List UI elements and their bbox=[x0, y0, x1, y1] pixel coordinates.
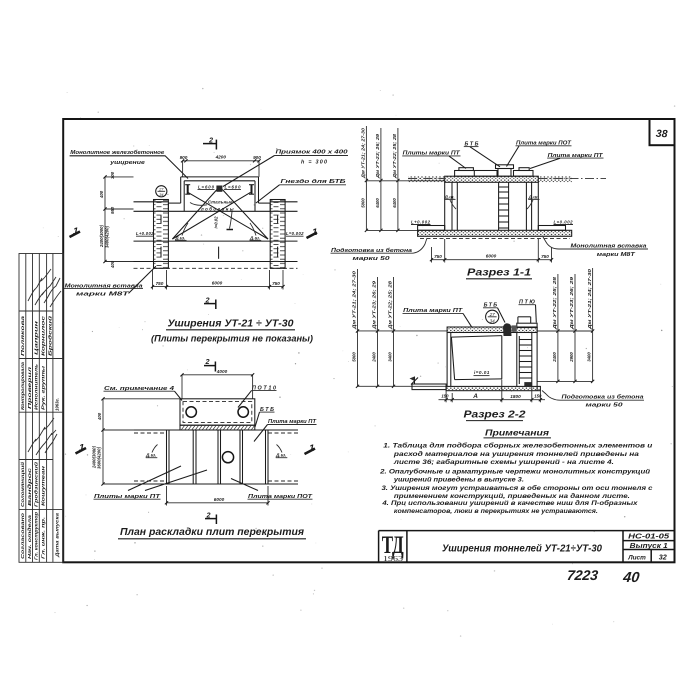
svg-text:марки 50: марки 50 bbox=[353, 256, 390, 262]
svg-text:6000: 6000 bbox=[486, 254, 497, 259]
svg-text:Гл. конструктор: Гл. конструктор bbox=[34, 512, 39, 560]
svg-text:750: 750 bbox=[156, 281, 164, 286]
svg-text:Бродский: Бродский bbox=[47, 315, 52, 356]
svg-text:32: 32 bbox=[659, 553, 667, 562]
svg-text:400: 400 bbox=[97, 412, 102, 421]
svg-text:3400(4200): 3400(4200) bbox=[104, 225, 109, 248]
svg-text:Дм УТ-23; 26; 29: Дм УТ-23; 26; 29 bbox=[375, 134, 380, 180]
svg-text:400: 400 bbox=[110, 260, 115, 269]
svg-text:Бандрос: Бандрос bbox=[27, 467, 32, 506]
svg-text:h = 300: h = 300 bbox=[301, 160, 327, 166]
svg-text:2: 2 bbox=[205, 357, 210, 366]
svg-text:900: 900 bbox=[253, 155, 261, 160]
svg-text:3400: 3400 bbox=[388, 352, 393, 362]
svg-text:Исполнитель: Исполнитель bbox=[34, 363, 39, 410]
svg-text:40: 40 bbox=[621, 570, 640, 586]
svg-text:1: 1 bbox=[73, 226, 78, 237]
svg-text:Дм УТ-21; 24; 27-30: Дм УТ-21; 24; 27-30 bbox=[361, 128, 366, 180]
svg-text:План раскладки плит перекры: План раскладки плит перекрытия bbox=[120, 526, 304, 538]
svg-text:2900: 2900 bbox=[569, 352, 574, 363]
svg-text:750: 750 bbox=[541, 254, 549, 259]
svg-text:i=0.02: i=0.02 bbox=[214, 216, 219, 229]
svg-text:950: 950 bbox=[110, 206, 115, 214]
svg-text:7223: 7223 bbox=[566, 567, 599, 583]
svg-text:1963г.: 1963г. bbox=[55, 398, 60, 411]
svg-text:2400: 2400 bbox=[372, 352, 377, 363]
svg-text:750: 750 bbox=[434, 254, 442, 259]
svg-text:2. Опалубочные и арматурные че: 2. Опалубочные и арматурные чертежи моно… bbox=[379, 467, 650, 475]
svg-text:34: 34 bbox=[159, 192, 164, 197]
svg-text:6000: 6000 bbox=[212, 281, 223, 286]
svg-text:марки 50: марки 50 bbox=[586, 403, 623, 409]
svg-text:Д.ш.: Д.ш. bbox=[145, 453, 156, 458]
svg-text:Разрез 1-1: Разрез 1-1 bbox=[467, 267, 531, 279]
svg-text:А: А bbox=[472, 393, 478, 400]
svg-text:L=0.002: L=0.002 bbox=[554, 219, 574, 224]
svg-text:1: 1 bbox=[312, 227, 317, 238]
svg-text:34: 34 bbox=[490, 318, 496, 323]
svg-text:150: 150 bbox=[441, 394, 449, 399]
svg-text:27: 27 bbox=[158, 186, 164, 191]
svg-text:марки М8Т: марки М8Т bbox=[76, 292, 130, 298]
svg-text:6400: 6400 bbox=[375, 198, 380, 208]
svg-text:Дм УТ-22; 25; 28: Дм УТ-22; 25; 28 bbox=[552, 276, 557, 330]
svg-text:1. Таблица для подбора сборных: 1. Таблица для подбора сборных железобет… bbox=[383, 442, 652, 450]
svg-text:Уширения УТ-21 ÷ УТ-30: Уширения УТ-21 ÷ УТ-30 bbox=[168, 318, 294, 330]
svg-text:i=0.01: i=0.01 bbox=[474, 370, 490, 375]
svg-text:Д.ш.: Д.ш. bbox=[275, 453, 286, 458]
svg-text:Цаприн: Цаприн bbox=[34, 320, 39, 355]
svg-text:5000: 5000 bbox=[360, 198, 365, 208]
svg-text:Гродзинский: Гродзинский bbox=[34, 461, 39, 507]
svg-text:Д.ш.: Д.ш. bbox=[249, 235, 260, 240]
svg-text:Дата выпуска: Дата выпуска bbox=[55, 512, 60, 558]
svg-text:Д.ш.: Д.ш. bbox=[444, 194, 455, 199]
svg-text:Соломяницкий: Соломяницкий bbox=[20, 461, 25, 507]
svg-text:5000: 5000 bbox=[352, 352, 357, 362]
svg-text:1: 1 bbox=[309, 443, 314, 454]
svg-text:Гл. инж. пр.: Гл. инж. пр. bbox=[41, 517, 46, 559]
svg-text:расход материалов на уширения: расход материалов на уширения тоннелей п… bbox=[393, 450, 640, 458]
svg-text:38: 38 bbox=[655, 128, 667, 141]
svg-text:Д.ш.: Д.ш. bbox=[174, 235, 185, 240]
svg-text:Дм УТ-22; 25; 28: Дм УТ-22; 25; 28 bbox=[388, 280, 393, 330]
svg-text:3400: 3400 bbox=[587, 352, 592, 362]
svg-text:3600(4200): 3600(4200) bbox=[97, 446, 102, 469]
svg-text:Приямок 400 х 400: Приямок 400 х 400 bbox=[276, 150, 348, 156]
svg-text:(Плиты перекрытия не показаны): (Плиты перекрытия не показаны) bbox=[151, 334, 313, 344]
svg-text:Уширения тоннелей УТ-21÷УТ-30: Уширения тоннелей УТ-21÷УТ-30 bbox=[442, 543, 602, 555]
svg-text:Дм УТ-21; 24; 27-30: Дм УТ-21; 24; 27-30 bbox=[587, 268, 592, 330]
svg-text:3. Уширения могут устраиваться: 3. Уширения могут устраиваться в обе сто… bbox=[382, 484, 654, 492]
svg-text:Д.ш.: Д.ш. bbox=[528, 194, 539, 199]
svg-text:компенсаторов, люки в перекрыт: компенсаторов, люки в перекрытиях не уст… bbox=[394, 508, 598, 515]
svg-text:марки М8Т: марки М8Т bbox=[597, 252, 636, 258]
svg-text:1: 1 bbox=[79, 443, 84, 454]
svg-text:Лист: Лист bbox=[627, 554, 646, 561]
svg-text:900: 900 bbox=[180, 155, 188, 160]
svg-text:Контролировала: Контролировала bbox=[20, 361, 25, 410]
svg-text:L+0.002: L+0.002 bbox=[136, 231, 154, 236]
svg-text:1800: 1800 bbox=[510, 394, 521, 399]
svg-text:Дм УТ-22; 25; 28: Дм УТ-22; 25; 28 bbox=[392, 134, 397, 180]
svg-text:Нач. отдела: Нач. отдела bbox=[27, 514, 32, 559]
svg-text:Дм УТ-23; 26; 29: Дм УТ-23; 26; 29 bbox=[372, 280, 377, 330]
svg-text:4000: 4000 bbox=[216, 369, 228, 374]
svg-text:Дм УТ-21; 24; 27-30: Дм УТ-21; 24; 27-30 bbox=[352, 270, 357, 330]
svg-text:Примечания: Примечания bbox=[485, 427, 549, 437]
svg-text:L=0.002: L=0.002 bbox=[286, 231, 304, 236]
svg-text:Рук. группы: Рук. группы bbox=[41, 365, 46, 410]
svg-text:листе 36; габаритные схемы уши: листе 36; габаритные схемы уширений - на… bbox=[393, 458, 615, 466]
svg-text:Кошутеан: Кошутеан bbox=[41, 465, 46, 506]
svg-text:Подготовка из бетона: Подготовка из бетона bbox=[562, 394, 644, 401]
svg-text:Выпуск 1: Выпуск 1 bbox=[630, 541, 668, 550]
svg-text:уширений приведены в выпуске 3: уширений приведены в выпуске 3. bbox=[393, 476, 524, 484]
svg-text:Дм УТ-23; 26; 29: Дм УТ-23; 26; 29 bbox=[569, 276, 574, 330]
svg-text:L=600: L=600 bbox=[198, 185, 215, 190]
svg-text:Согласовано: Согласовано bbox=[20, 512, 25, 559]
svg-text:750: 750 bbox=[272, 281, 280, 286]
svg-text:L=600: L=600 bbox=[225, 185, 242, 190]
svg-text:НС-01-05: НС-01-05 bbox=[628, 532, 670, 541]
svg-text:4. При использовании уширений: 4. При использовании уширений в качестве… bbox=[381, 499, 638, 507]
svg-text:Разрез 2-2: Разрез 2-2 bbox=[464, 408, 526, 420]
svg-text:6000: 6000 bbox=[214, 497, 225, 502]
svg-text:Монолитное железобетонное: Монолитное железобетонное bbox=[70, 149, 164, 156]
svg-text:400: 400 bbox=[99, 190, 104, 199]
svg-text:1963: 1963 bbox=[383, 554, 403, 563]
svg-text:150: 150 bbox=[534, 394, 542, 399]
svg-text:4200: 4200 bbox=[215, 155, 227, 160]
svg-text:Гнездо для БТБ: Гнездо для БТБ bbox=[281, 179, 346, 185]
svg-text:6400: 6400 bbox=[392, 198, 397, 208]
svg-text:300: 300 bbox=[110, 171, 115, 179]
svg-text:L+0.002: L+0.002 bbox=[411, 219, 431, 224]
svg-text:Проверил: Проверил bbox=[27, 366, 32, 409]
svg-text:применением конструкций, приве: применением конструкций, приведеных на д… bbox=[394, 492, 630, 500]
svg-text:уширение: уширение bbox=[109, 160, 145, 166]
svg-text:Корнилос: Корнилос bbox=[41, 315, 46, 356]
svg-text:Полякова: Полякова bbox=[20, 315, 25, 356]
svg-text:2400: 2400 bbox=[552, 352, 557, 363]
svg-text:27: 27 bbox=[489, 312, 496, 317]
svg-text:Стальные: Стальные bbox=[208, 200, 233, 205]
